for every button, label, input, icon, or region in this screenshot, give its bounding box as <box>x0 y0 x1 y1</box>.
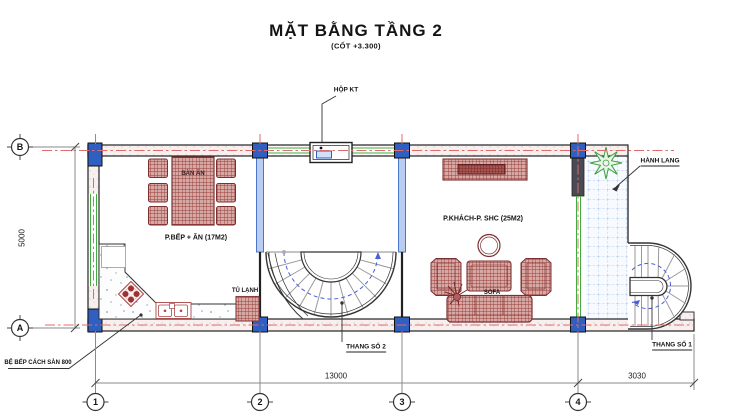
dim-13000: 13000 <box>325 372 347 381</box>
hop-kt-box <box>310 143 352 163</box>
fridge-label: TỦ LẠNH <box>231 288 259 294</box>
hop-kt-label: HỘP KT <box>334 87 358 94</box>
dim-5000: 5000 <box>18 229 27 247</box>
corridor-tiles <box>586 156 628 319</box>
kitchen-room-label: P.BẾP + ĂN (17M2) <box>165 235 227 242</box>
dining-set <box>149 157 236 225</box>
grid-axis-1: 1 <box>93 397 98 407</box>
counter-note-label: BỆ BẾP CÁCH SÀN 800 <box>4 360 71 366</box>
grid-axis-3: 3 <box>399 397 404 407</box>
corridor-label: HÀNH LANG <box>641 158 680 167</box>
sofa-label: SOFA <box>484 290 500 296</box>
grid-axis-4: 4 <box>575 397 580 407</box>
fridge <box>236 297 259 322</box>
dining-table-label: BÀN ĂN <box>181 171 204 177</box>
stair1-label: THANG SỐ 1 <box>652 342 692 351</box>
fan-staircase <box>266 250 396 319</box>
page-subtitle: (CỐT +3.300) <box>331 42 381 51</box>
grid-axis-B: B <box>17 142 24 152</box>
stair2-label: THANG SỐ 2 <box>346 344 386 353</box>
living-room-label: P.KHÁCH-P. SHC (25M2) <box>443 216 523 223</box>
grid-axis-A: A <box>17 323 24 333</box>
floor-plan-page: MẶT BẰNG TẦNG 2 (CỐT +3.300) HỘP KT HÀNH… <box>0 0 750 412</box>
sink-icon <box>156 303 191 319</box>
tv-cabinet <box>443 159 527 180</box>
plant-icon <box>590 147 622 179</box>
sofa-set <box>431 235 551 323</box>
dim-3030: 3030 <box>628 372 646 381</box>
grid-axis-2: 2 <box>257 397 262 407</box>
page-title: MẶT BẰNG TẦNG 2 <box>269 21 443 41</box>
